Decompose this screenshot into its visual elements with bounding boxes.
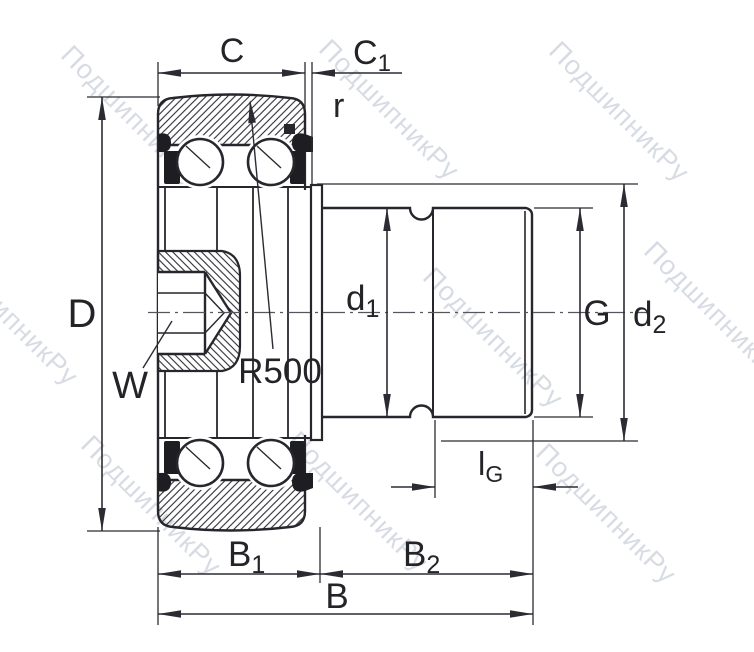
seal [292,133,313,152]
label-d2-main: d [633,295,652,334]
label-lG: lG [478,445,503,487]
label-r: r [333,87,344,125]
label-d1: d1 [346,279,379,323]
label-B1: B1 [228,535,265,579]
label-C1-sub: 1 [378,50,391,77]
outer-ring-bottom-section [158,480,305,531]
label-d2-sub: 2 [652,311,666,339]
label-d2: d2 [633,295,666,339]
drawing-canvas: ПодшипникРу ПодшипникРу ПодшипникРу Подш… [0,0,754,652]
bearing-technical-drawing: ПодшипникРу ПодшипникРу ПодшипникРу Подш… [0,0,754,652]
raceway-land-mark [284,124,295,134]
label-d1-sub: 1 [365,295,379,323]
seal [158,473,171,492]
ball [177,440,223,486]
label-C: C [220,32,245,70]
label-W: W [112,365,148,407]
label-R500: R500 [238,352,322,391]
watermark-text: ПодшипникРу [530,438,682,590]
label-B: B [325,577,348,616]
label-lG-sub: G [485,461,503,487]
outer-ring-top-section [158,95,305,146]
label-B1-main: B [228,535,251,574]
label-B1-sub: 1 [251,551,265,579]
ball [248,440,294,486]
label-lG-main: l [478,445,485,482]
label-C1: C1 [353,34,391,77]
label-C1-main: C [353,34,378,72]
label-D: D [68,292,97,336]
label-B2-main: B [403,535,426,574]
seal [292,473,313,492]
label-B2: B2 [403,535,440,579]
label-G: G [583,294,610,333]
ball [177,139,223,185]
label-d1-main: d [346,279,365,318]
seal [158,133,171,152]
watermark-text: ПодшипникРу [543,36,695,188]
watermark-text: ПодшипникРу [417,262,569,414]
label-B2-sub: 2 [426,551,440,579]
